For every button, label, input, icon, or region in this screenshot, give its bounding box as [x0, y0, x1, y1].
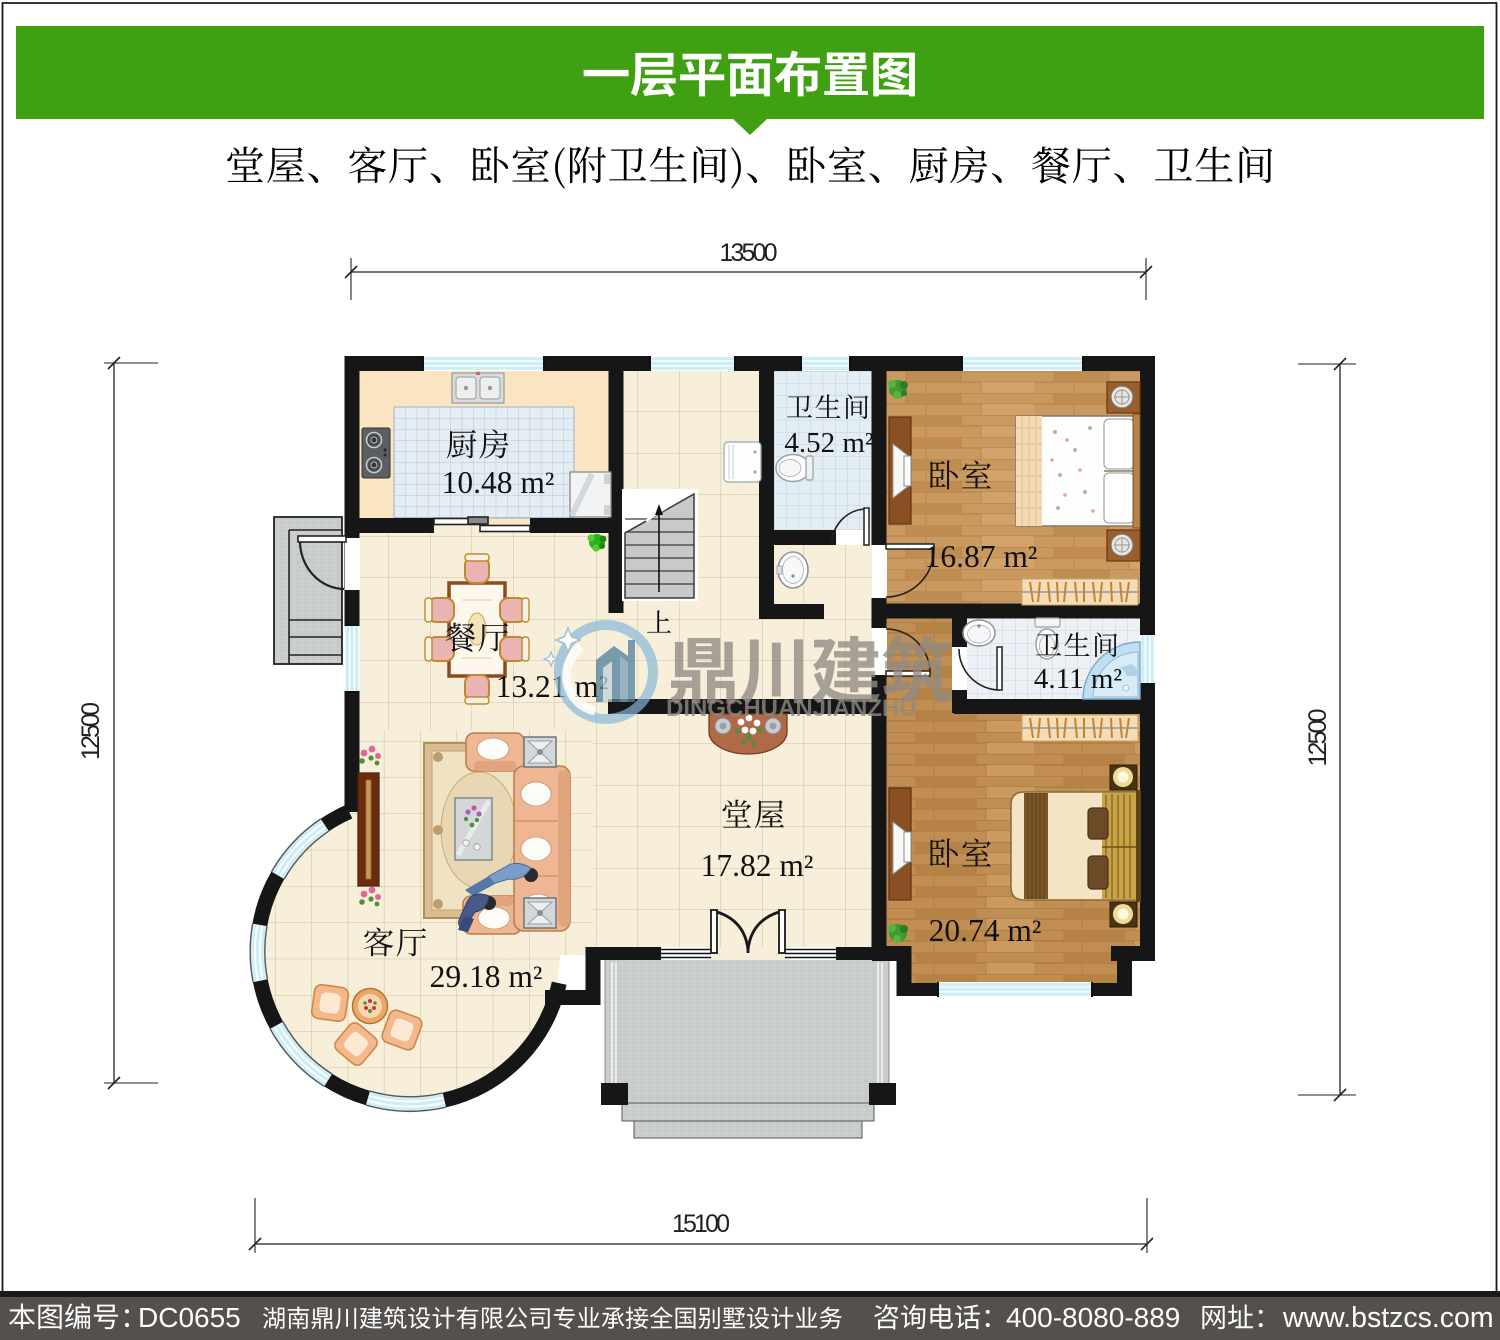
svg-text:12500: 12500	[77, 702, 105, 760]
svg-text:13500: 13500	[720, 239, 778, 267]
svg-text:13.21 m²: 13.21 m²	[496, 669, 609, 704]
svg-text:15100: 15100	[672, 1210, 730, 1238]
svg-text:DINGCHUANJIANZHU: DINGCHUANJIANZHU	[666, 695, 917, 722]
svg-text:4.52 m²: 4.52 m²	[784, 427, 874, 459]
svg-text:4.11 m²: 4.11 m²	[1034, 663, 1122, 695]
svg-text:12500: 12500	[1304, 709, 1332, 767]
svg-text:16.87 m²: 16.87 m²	[925, 539, 1038, 574]
svg-text:400-8080-889: 400-8080-889	[1006, 1302, 1180, 1333]
svg-text:10.48 m²: 10.48 m²	[442, 465, 555, 500]
svg-text:www.bstzcs.com: www.bstzcs.com	[1282, 1302, 1494, 1334]
svg-text:17.82 m²: 17.82 m²	[701, 848, 814, 883]
svg-text:29.18 m²: 29.18 m²	[430, 959, 543, 994]
svg-text:20.74 m²: 20.74 m²	[929, 913, 1042, 948]
svg-text:DC0655: DC0655	[138, 1302, 241, 1333]
